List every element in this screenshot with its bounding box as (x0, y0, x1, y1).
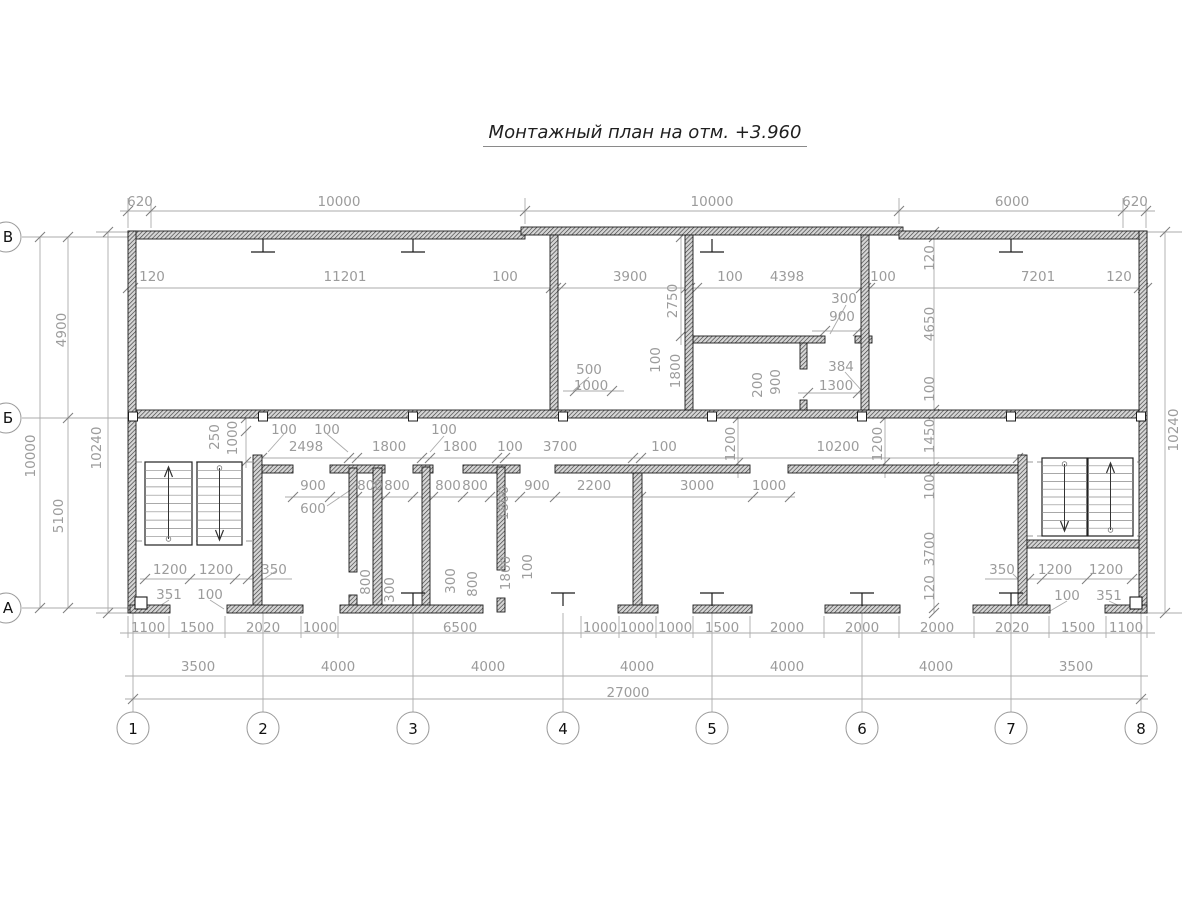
dim-label: 300 (443, 568, 459, 594)
dim-label: 7201 (1021, 269, 1055, 285)
dim-label: 350 (261, 562, 287, 578)
dim-label: 10000 (23, 435, 39, 478)
dimension-labels-layer: 6201000010000600062012011201100390010043… (23, 194, 1182, 701)
dim-label: 1000 (303, 620, 337, 636)
dim-label: 100 (922, 474, 938, 500)
wall-segment (340, 605, 483, 613)
dim-label: 1200 (1038, 562, 1072, 578)
dim-label: 100 (648, 347, 664, 373)
dim-label: 1200 (1089, 562, 1123, 578)
wall-segment (128, 231, 525, 239)
wall-segment (521, 227, 903, 235)
wall-segment (227, 605, 303, 613)
dim-label: 1800 (496, 486, 512, 520)
dim-label: 120 (1106, 269, 1132, 285)
dim-label: 1200 (153, 562, 187, 578)
dim-label: 3500 (181, 659, 215, 675)
dim-label: 120 (139, 269, 165, 285)
column-mark (1007, 412, 1016, 421)
dim-label: 10200 (817, 439, 860, 455)
dim-label: 2020 (246, 620, 280, 636)
dim-label: 300 (831, 291, 857, 307)
dim-label: 3500 (1059, 659, 1093, 675)
dim-label: 300 (382, 577, 398, 603)
grid-axis-label: 4 (558, 720, 568, 738)
dim-label: 4000 (321, 659, 355, 675)
dim-label: 1800 (372, 439, 406, 455)
dim-label: 1100 (1109, 620, 1143, 636)
wall-segment (618, 605, 658, 613)
wall-segment (899, 231, 1147, 239)
dim-label: 4650 (922, 307, 938, 341)
dim-label: 800 (465, 571, 481, 597)
wall-segment (463, 465, 520, 473)
column-mark (259, 412, 268, 421)
dim-label: 2020 (995, 620, 1029, 636)
wall-segment (349, 468, 357, 572)
dim-label: 500 (576, 362, 602, 378)
floor-plan-page: Монтажный план на отм. +3.960 ВБА1234567… (0, 0, 1200, 900)
dim-label: 1500 (1061, 620, 1095, 636)
dim-label: 4900 (54, 313, 70, 347)
dim-label: 3900 (613, 269, 647, 285)
wall-segment (497, 598, 505, 612)
dim-label: 1200 (870, 427, 886, 461)
dim-label: 2498 (289, 439, 323, 455)
dim-label: 1500 (180, 620, 214, 636)
dim-label: 3700 (922, 532, 938, 566)
dim-label: 2200 (577, 478, 611, 494)
dim-label: 2000 (920, 620, 954, 636)
wall-segment (693, 605, 752, 613)
column-mark (129, 412, 138, 421)
dim-label: 4000 (620, 659, 654, 675)
wall-segment (788, 465, 1018, 473)
dim-label: 351 (156, 587, 182, 603)
dim-label: 100 (497, 439, 523, 455)
dim-label: 100 (922, 376, 938, 402)
wall-segment (555, 465, 750, 473)
dim-label: 620 (1122, 194, 1148, 210)
dim-label: 10000 (318, 194, 361, 210)
dim-label: 900 (829, 309, 855, 325)
dim-label: 800 (357, 478, 383, 494)
wall-segment (262, 465, 293, 473)
dim-label: 100 (431, 422, 457, 438)
wall-segment (800, 400, 807, 410)
wall-segment (973, 605, 1050, 613)
wall-segment (800, 343, 807, 369)
dim-label: 1450 (922, 419, 938, 453)
dim-label: 100 (492, 269, 518, 285)
dim-label: 900 (768, 369, 784, 395)
dim-label: 3700 (543, 439, 577, 455)
dim-label: 600 (300, 501, 326, 517)
dim-label: 100 (197, 587, 223, 603)
dim-label: 620 (127, 194, 153, 210)
dim-label: 100 (314, 422, 340, 438)
dim-label: 1500 (705, 620, 739, 636)
dim-label: 1100 (131, 620, 165, 636)
dim-label: 120 (922, 575, 938, 601)
grid-axis-label: 1 (128, 720, 138, 738)
dim-label: 100 (870, 269, 896, 285)
dim-label: 800 (435, 478, 461, 494)
wall-segment (550, 235, 558, 410)
wall-segment (861, 235, 869, 410)
wall-segment (1027, 540, 1139, 548)
wall-segment (1018, 455, 1027, 612)
column-mark (409, 412, 418, 421)
dim-label: 120 (922, 245, 938, 271)
dim-label: 250 (207, 424, 223, 450)
grid-axis-label: 5 (707, 720, 717, 738)
dim-label: 1000 (574, 378, 608, 394)
leader-line (327, 489, 352, 506)
dim-label: 4000 (471, 659, 505, 675)
dim-label: 4000 (770, 659, 804, 675)
wall-segment (253, 455, 262, 612)
dim-label: 1000 (658, 620, 692, 636)
dim-label: 900 (524, 478, 550, 494)
column-mark (135, 597, 147, 609)
dim-label: 1200 (723, 427, 739, 461)
dim-label: 1000 (620, 620, 654, 636)
dim-label: 1800 (498, 556, 514, 590)
dim-label: 6000 (995, 194, 1029, 210)
wall-segment (825, 605, 900, 613)
dim-label: 800 (384, 478, 410, 494)
grid-axis-label: 2 (258, 720, 268, 738)
dim-label: 5100 (51, 499, 67, 533)
dim-label: 900 (300, 478, 326, 494)
dim-label: 1800 (443, 439, 477, 455)
dim-label: 11201 (324, 269, 367, 285)
wall-segment (1139, 231, 1147, 613)
dim-label: 2000 (770, 620, 804, 636)
dim-label: 100 (717, 269, 743, 285)
dim-label: 351 (1096, 588, 1122, 604)
column-mark (1137, 412, 1146, 421)
dim-label: 10000 (691, 194, 734, 210)
dim-label: 4398 (770, 269, 804, 285)
dim-label: 100 (651, 439, 677, 455)
dim-label: 27000 (607, 685, 650, 701)
grid-axis-label: 6 (857, 720, 867, 738)
dim-label: 2000 (845, 620, 879, 636)
dim-label: 100 (520, 554, 536, 580)
grid-axis-label: А (3, 599, 14, 617)
grid-axis-label: 8 (1136, 720, 1146, 738)
dim-label: 10240 (89, 427, 105, 470)
dim-label: 384 (828, 359, 854, 375)
column-mark (1130, 597, 1142, 609)
dim-label: 350 (989, 562, 1015, 578)
dim-label: 1000 (752, 478, 786, 494)
dim-label: 2750 (665, 284, 681, 318)
dim-label: 1800 (668, 354, 684, 388)
dim-label: 100 (1054, 588, 1080, 604)
dim-label: 4000 (919, 659, 953, 675)
grid-axis-label: 7 (1006, 720, 1016, 738)
dim-label: 10240 (1166, 409, 1182, 452)
dim-label: 6500 (443, 620, 477, 636)
column-mark (559, 412, 568, 421)
column-mark (858, 412, 867, 421)
wall-segment (693, 336, 825, 343)
grid-axis-label: Б (3, 409, 13, 427)
drawing-title: Монтажный план на отм. +3.960 (455, 122, 835, 143)
drawing-title-text: Монтажный план на отм. +3.960 (483, 122, 808, 147)
dim-label: 1000 (583, 620, 617, 636)
wall-segment (128, 231, 136, 613)
wall-segment (685, 235, 693, 410)
dim-label: 800 (358, 569, 374, 595)
dim-label: 1200 (199, 562, 233, 578)
dim-label: 100 (271, 422, 297, 438)
grid-axis-label: В (3, 228, 13, 246)
wall-segment (422, 467, 430, 612)
dim-label: 200 (750, 372, 766, 398)
dim-label: 800 (462, 478, 488, 494)
column-mark (708, 412, 717, 421)
dim-label: 1000 (225, 421, 241, 455)
wall-segment (633, 473, 642, 612)
wall-segment (136, 410, 1139, 418)
dim-label: 3000 (680, 478, 714, 494)
dim-label: 1300 (819, 378, 853, 394)
grid-axis-label: 3 (408, 720, 418, 738)
